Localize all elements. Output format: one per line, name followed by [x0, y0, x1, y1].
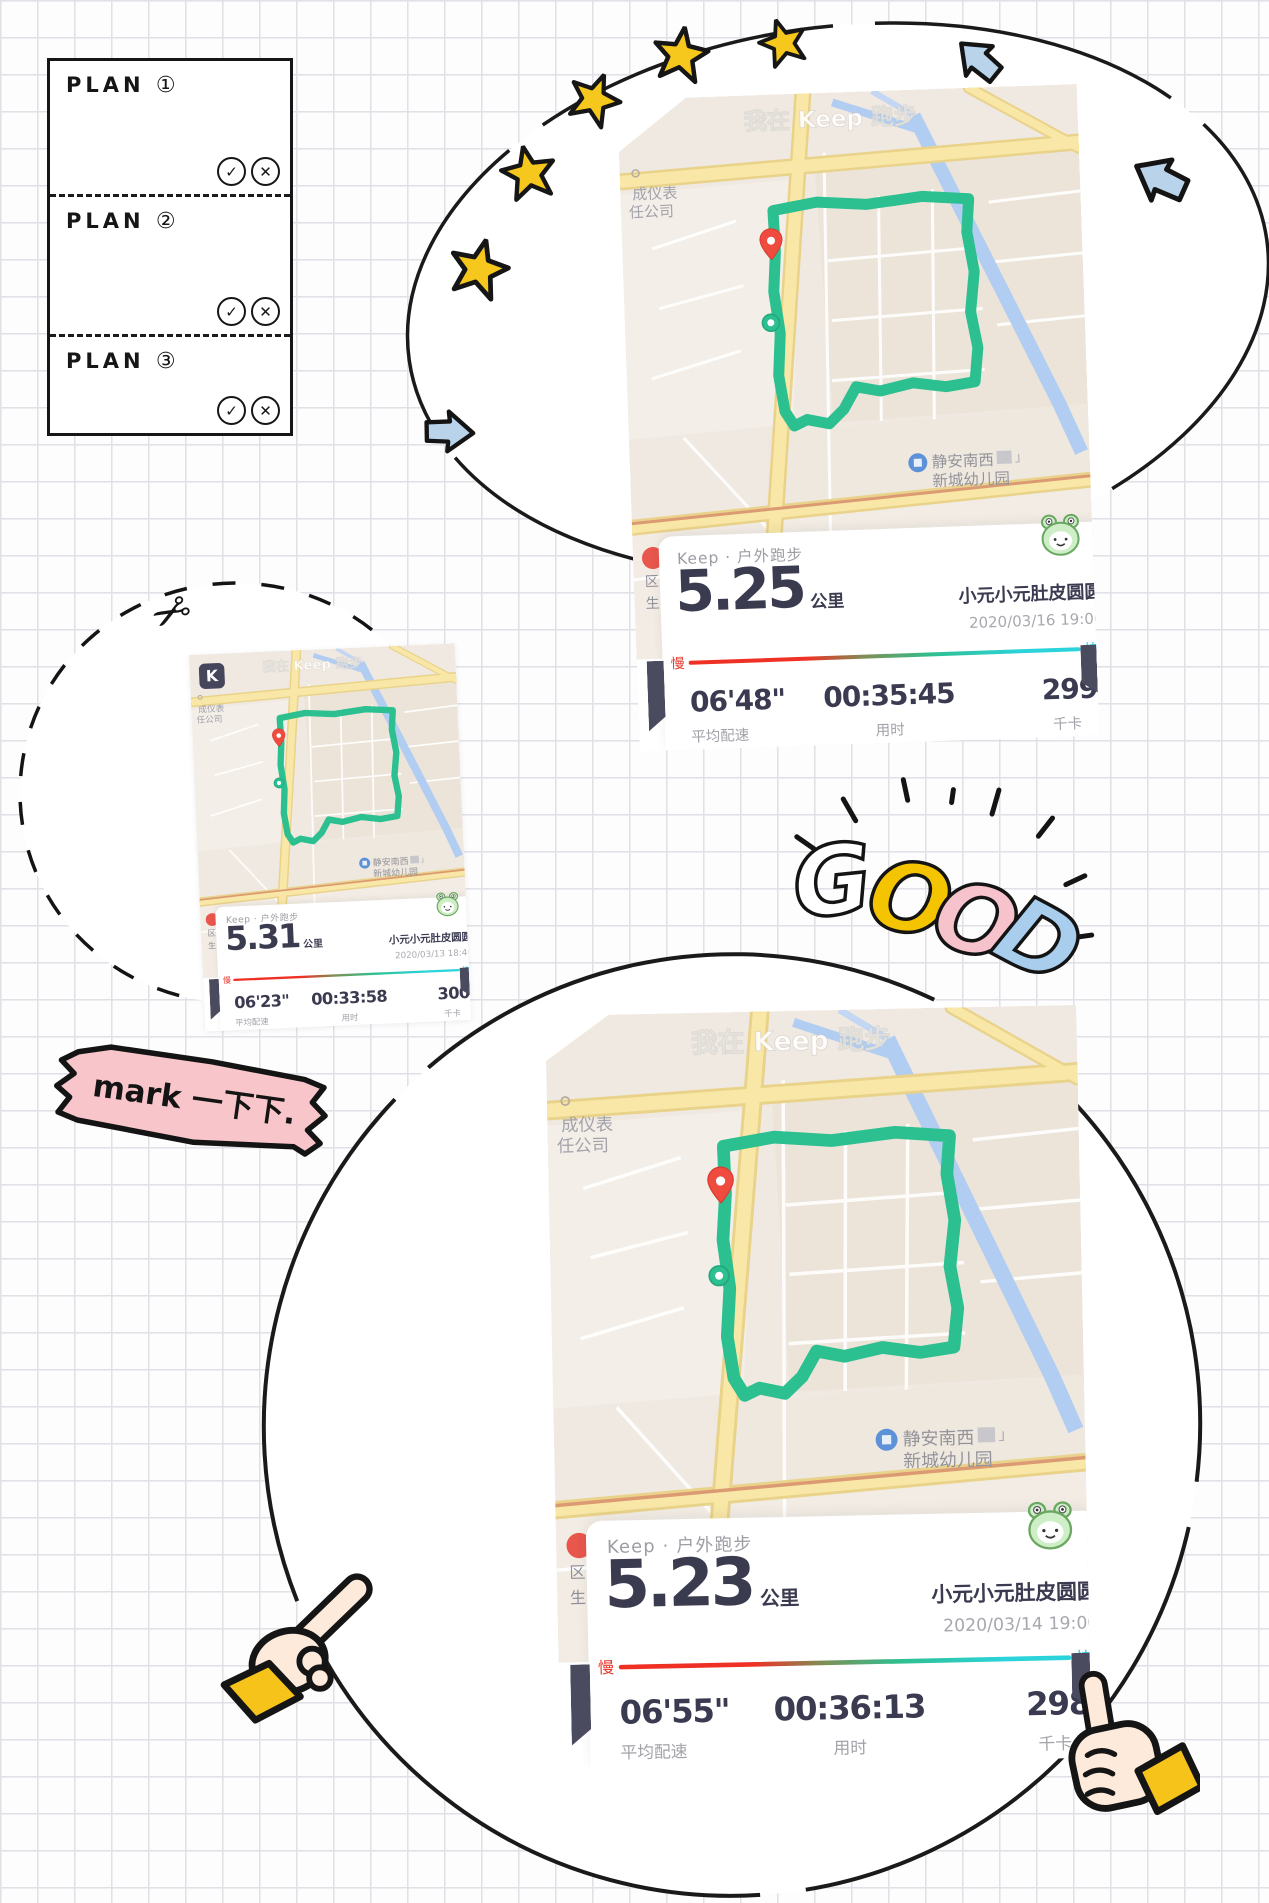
distance-value: 5.31: [224, 918, 300, 959]
dark-ribbon-left: [570, 1664, 591, 1745]
plan-label: PLAN ②: [66, 209, 176, 234]
username: 小元小元肚皮圆圆: [760, 1575, 1092, 1612]
cross-icon: ✕: [251, 157, 280, 186]
frog-avatar: [433, 890, 462, 919]
stat-avg-pace: 06'55" 平均配速: [619, 1694, 730, 1764]
good-doodle: G O O D: [785, 775, 1095, 1025]
run-stats-card: Keep · 户外跑步 5.25 公里 小元小元肚皮圆圆 2020/03/16 …: [658, 521, 1099, 750]
plan-label: PLAN ①: [66, 73, 176, 98]
run-datetime: 2020/03/14 19:00: [761, 1612, 1092, 1640]
plan-item-3: PLAN ③ ✓ ✕: [50, 337, 290, 433]
stat-duration: 00:36:13 用时: [763, 1689, 938, 1761]
pace-gradient-bar: [619, 1655, 1072, 1669]
plan-item-1: PLAN ① ✓ ✕: [50, 61, 290, 197]
pace-slow-label: 慢: [670, 653, 685, 673]
collage-page: { "plan_card": { "items": [ {"label": "P…: [0, 0, 1269, 1903]
frog-avatar: [1022, 1497, 1079, 1554]
plan-label: PLAN ③: [66, 349, 176, 374]
distance-value: 5.23: [604, 1545, 754, 1624]
pace-slow-label: 慢: [223, 974, 232, 986]
pace-gradient-bar: [689, 647, 1081, 665]
pace-gradient-bar: [233, 969, 459, 981]
stat-avg-pace: 06'48" 平均配速: [690, 685, 787, 747]
star-icon: [495, 140, 562, 206]
thumbs-up-icon: [1035, 1652, 1200, 1847]
username: 小元小元肚皮圆圆: [810, 577, 1099, 613]
frog-avatar: [1036, 510, 1086, 560]
keep-logo: K: [199, 663, 226, 690]
plan-item-2: PLAN ② ✓ ✕: [50, 197, 290, 337]
run-stats-card: Keep · 户外跑步 5.31 公里 小元小元肚皮圆圆 2020/03/13 …: [215, 896, 471, 1031]
cross-icon: ✕: [251, 396, 280, 425]
check-icon: ✓: [217, 396, 246, 425]
pointing-hand-icon: [208, 1548, 380, 1724]
distance-value: 5.25: [674, 556, 805, 626]
stat-duration: 00:35:45 用时: [813, 678, 965, 742]
arrow-icon: [418, 404, 480, 461]
stat-avg-pace: 06'23" 平均配速: [234, 992, 290, 1028]
keep-run-screenshot-0316: Keep · 户外跑步 5.25 公里 小元小元肚皮圆圆 2020/03/16 …: [617, 100, 1077, 752]
pace-slow-label: 慢: [598, 1656, 615, 1679]
run-stats-card: Keep · 户外跑步 5.23 公里 小元小元肚皮圆圆 2020/03/14 …: [586, 1511, 1092, 1769]
stat-duration: 00:33:58 用时: [306, 987, 394, 1025]
check-icon: ✓: [217, 297, 246, 326]
keep-run-screenshot-0314: Keep · 户外跑步 5.23 公里 小元小元肚皮圆圆 2020/03/14 …: [545, 1016, 1005, 1668]
dark-ribbon-left: [647, 661, 666, 732]
cross-icon: ✕: [251, 297, 280, 326]
check-icon: ✓: [217, 157, 246, 186]
run-datetime: 2020/03/16 19:00: [811, 609, 1099, 637]
star-icon: [648, 22, 713, 86]
plan-checklist-card: PLAN ① ✓ ✕ PLAN ② ✓ ✕ PLAN ③ ✓ ✕: [47, 58, 293, 436]
